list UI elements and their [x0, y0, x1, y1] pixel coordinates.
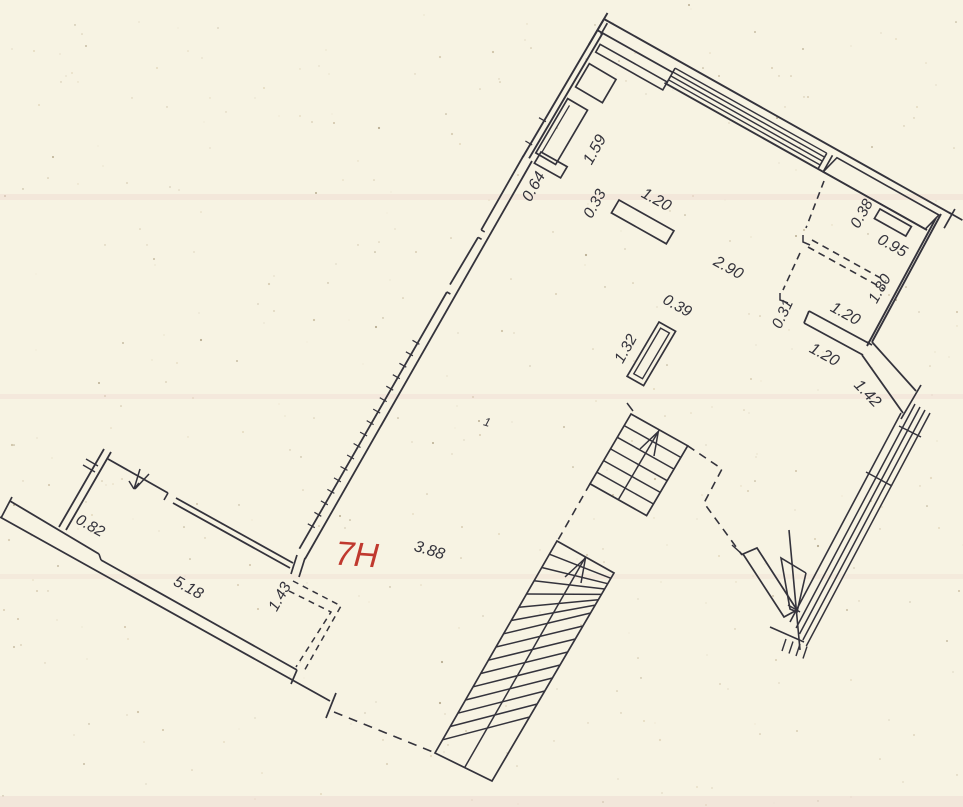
svg-text:7H: 7H	[334, 535, 380, 576]
